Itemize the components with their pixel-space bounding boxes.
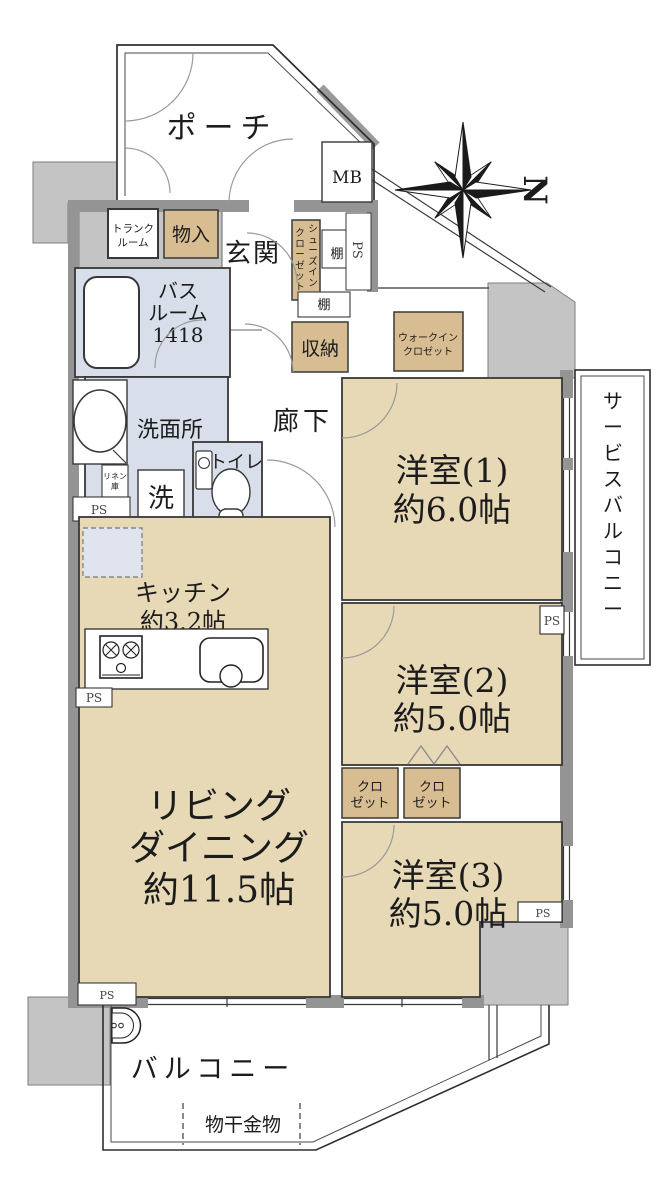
walk-in-closet-label-1: ウォークイン	[398, 332, 458, 344]
closet-left-label-1: クロ	[357, 780, 383, 795]
washroom-label: 洗面所	[137, 418, 203, 443]
trunk-room-label-2: ルーム	[117, 237, 148, 249]
ps-linen-label: PS	[91, 503, 107, 517]
mb-label: MB	[332, 168, 362, 188]
washbasin-icon	[73, 380, 127, 464]
ps-kitchen-label: PS	[86, 691, 102, 705]
exterior-block-bottom-right	[480, 922, 568, 1005]
bedroom2-size: 約5.0帖	[393, 699, 511, 738]
balcony: バルコニー 物干金物	[103, 1005, 549, 1150]
ps-bedroom2-label: PS	[544, 614, 560, 628]
living-label-3: 約11.5帖	[143, 870, 295, 911]
ps-bedroom3-label: PS	[536, 907, 551, 920]
laundry-hardware-label: 物干金物	[205, 1114, 281, 1136]
exterior-block-right	[488, 283, 575, 378]
closet-left-label-2: ゼット	[350, 796, 389, 811]
sink-icon	[200, 638, 263, 687]
floor-plan-page: ポーチ MB N トランク ルーム 物入 玄関 シューズイン クローゼッ	[0, 0, 671, 1200]
ps-living-label: PS	[100, 989, 115, 1002]
bedroom3-size: 約5.0帖	[389, 894, 507, 933]
monoire-label: 物入	[172, 224, 210, 246]
shoes-closet-label-1: シューズイン	[308, 224, 318, 289]
linen-box	[102, 465, 128, 497]
storage-label: 収納	[301, 338, 339, 360]
closet-right-label-1: クロ	[419, 780, 445, 795]
living-label-1: リビング	[147, 786, 291, 827]
stove-icon	[100, 636, 142, 678]
shelf-top-label: 棚	[330, 247, 343, 262]
bedroom1-size: 約6.0帖	[393, 490, 511, 529]
kitchen-name: キッチン	[135, 579, 231, 607]
service-balcony: サービスバルコニー	[575, 370, 650, 665]
bedroom3-name: 洋室(3)	[392, 856, 505, 895]
bedroom1-name: 洋室(1)	[396, 451, 509, 490]
exterior-block-bottom-left	[28, 997, 110, 1085]
faucet-icon	[112, 1008, 141, 1043]
bathroom-label-1: バス	[158, 279, 198, 303]
bathroom-label-2: ルーム	[148, 301, 207, 325]
floor-plan: ポーチ MB N トランク ルーム 物入 玄関 シューズイン クローゼッ	[0, 0, 671, 1200]
walk-in-closet-label-2: クロゼット	[403, 346, 453, 358]
trunk-room-label-1: トランク	[112, 223, 154, 235]
refrigerator-space	[83, 528, 142, 577]
linen-label-2: 庫	[111, 481, 119, 491]
shelf-bottom-label: 棚	[317, 298, 330, 313]
washer-label: 洗	[148, 484, 174, 514]
bathtub-icon	[84, 277, 139, 368]
balcony-label: バルコニー	[131, 1054, 295, 1085]
service-balcony-label: サービスバルコニー	[603, 389, 623, 621]
compass-north-label: N	[516, 175, 554, 204]
closet-right-label-2: ゼット	[412, 796, 451, 811]
ps-entrance-label: PS	[349, 241, 364, 259]
linen-label-1: リネン	[103, 472, 127, 481]
living-label-2: ダイニング	[129, 828, 309, 869]
hallway-label: 廊下	[273, 407, 333, 437]
entrance-door-gap	[249, 199, 294, 214]
bedroom2-name: 洋室(2)	[396, 661, 509, 700]
shoes-closet-label-2: クローゼット	[295, 228, 305, 293]
porch-label: ポーチ	[167, 111, 278, 146]
compass-icon: N	[395, 122, 554, 258]
genkan-label: 玄関	[225, 239, 281, 269]
